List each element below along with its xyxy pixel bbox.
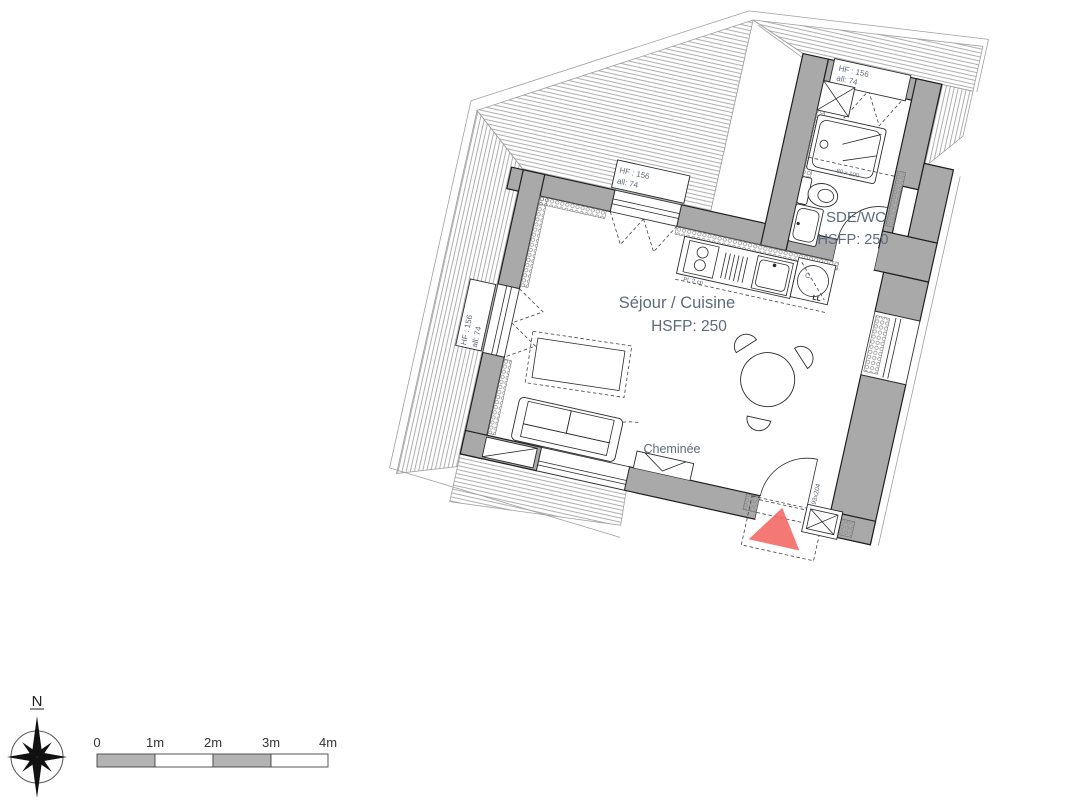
scale-tick-0: 0: [93, 735, 100, 750]
chair: [730, 330, 757, 353]
bathroom-label: SDE/WC: [826, 209, 886, 226]
floor-plan-page: HF : 156 all: 74 HF : 156 all: 74 HF : 1…: [0, 0, 1074, 800]
closet: [817, 81, 855, 117]
shower-fixture: 80 x 100: [806, 114, 886, 184]
fireplace-label: Cheminée: [644, 442, 701, 456]
entry-door-size-label: 93x204: [811, 483, 823, 506]
scale-tick-2: 2m: [204, 735, 222, 750]
window-right-niche: [861, 311, 920, 384]
washing-machine: C. LL: [790, 257, 836, 304]
dining-table: [712, 326, 821, 440]
compass-north-label: N: [32, 693, 43, 710]
table-suggestion: [525, 331, 632, 397]
chair: [745, 416, 771, 433]
scale-tick-1: 1m: [146, 735, 164, 750]
living-room-ceiling-label: HSFP: 250: [651, 318, 727, 335]
compass-rose: N: [7, 693, 67, 798]
floor-plan-drawing: HF : 156 all: 74 HF : 156 all: 74 HF : 1…: [0, 0, 1074, 800]
scale-tick-3: 3m: [262, 735, 280, 750]
scale-tick-4: 4m: [319, 735, 337, 750]
living-room-label: Séjour / Cuisine: [619, 294, 735, 312]
bathroom-ceiling-label: HSFP: 250: [818, 232, 889, 248]
scale-bar: 0 1m 2m 3m 4m: [93, 735, 337, 767]
chair: [795, 342, 818, 369]
